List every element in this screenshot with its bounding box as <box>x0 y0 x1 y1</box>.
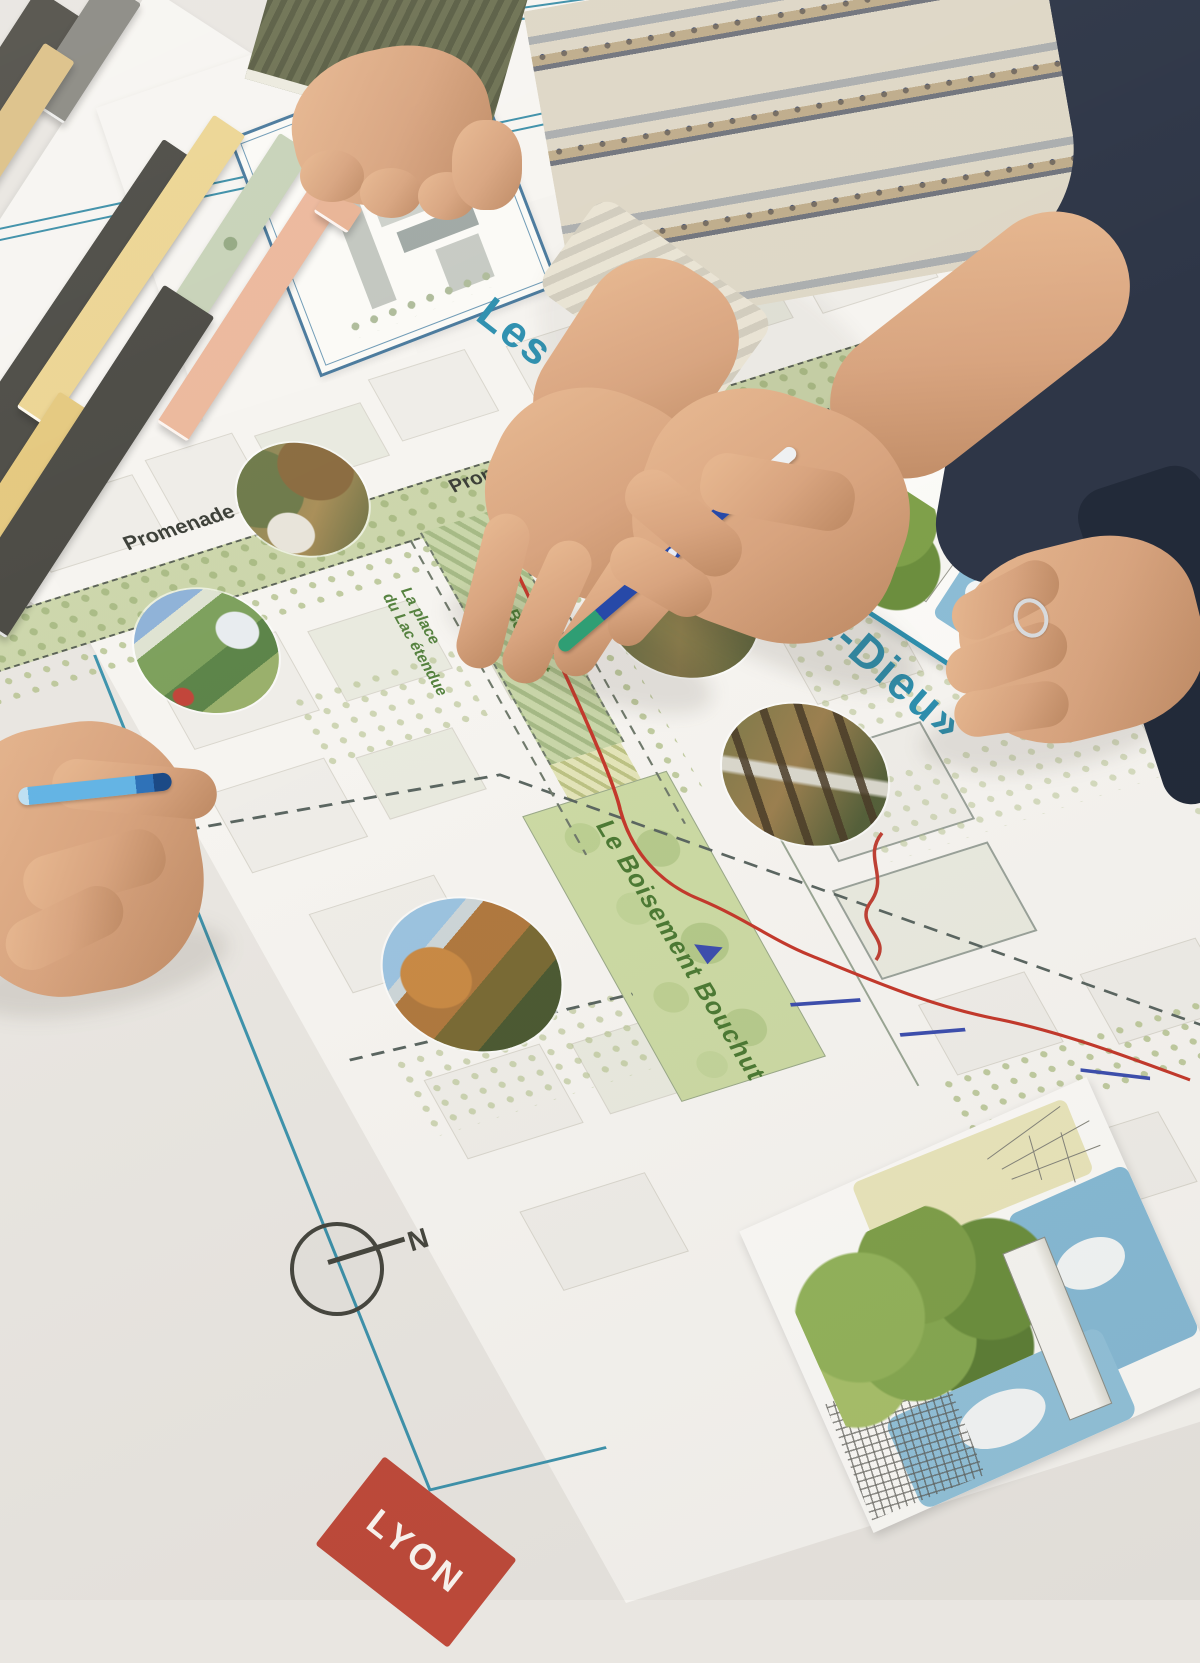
fist-knuckle <box>300 150 364 202</box>
workshop-photo: { "poster": { "title_start": "Les", "tit… <box>0 0 1200 1600</box>
fist-thumb <box>452 120 522 210</box>
fist-knuckle <box>360 168 422 218</box>
lyon-logo-text: LYON <box>359 1501 474 1603</box>
compass <box>290 1222 384 1316</box>
red-squiggle <box>852 828 962 968</box>
